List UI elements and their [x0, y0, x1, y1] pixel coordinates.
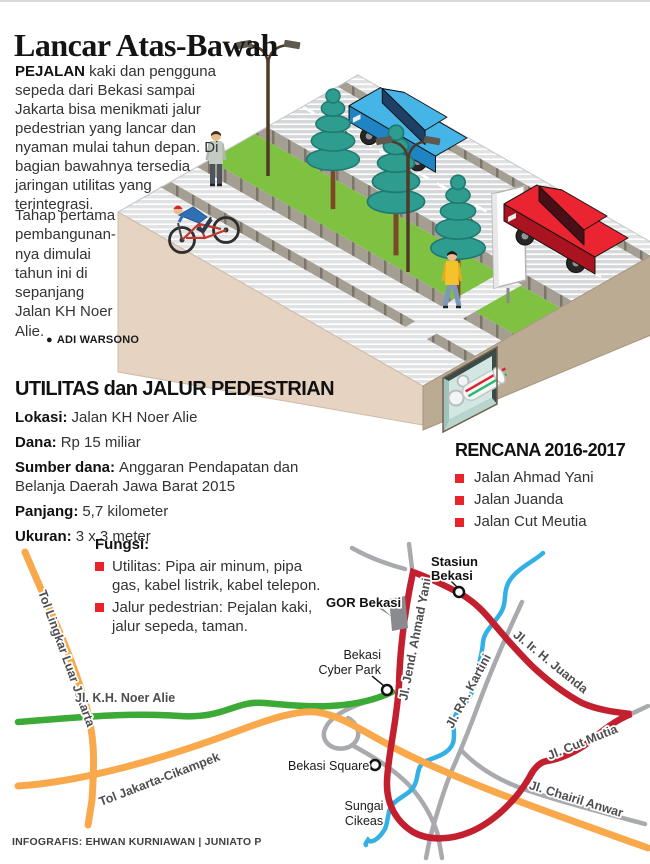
red-square-bullet-icon [95, 603, 104, 612]
spec-lokasi: Lokasi:Jalan KH Noer Alie [15, 408, 345, 427]
road-tol-cikampek [18, 712, 648, 848]
rencana-heading: RENCANA 2016-2017 [455, 440, 640, 461]
stasiun-marker-icon [454, 587, 464, 597]
fungsi-item: Utilitas: Pipa air minum, pipa gas, kabe… [95, 557, 327, 595]
intro-lead-word: PEJALAN [15, 63, 85, 80]
label-cut-mutia: Jl. Cut Mutia [545, 721, 620, 762]
spec-panjang: Panjang:5,7 kilometer [15, 502, 345, 521]
label-tol-lingkar: Tol Lingkar Luar Jakarta [35, 588, 98, 729]
byline-name: ADI WARSONO [57, 334, 139, 346]
label-cyber-line1: Bekasi [343, 648, 381, 662]
intro-paragraph-narrow: Tahap pertama pembangunan-nya dimulai ta… [15, 206, 123, 341]
rencana-item: Jalan Cut Meutia [455, 511, 640, 533]
rencana-item: Jalan Juanda [455, 489, 640, 511]
label-bekasi-square: Bekasi Square [288, 759, 369, 773]
intro-text: kaki dan pengguna sepeda dari Bekasi sam… [15, 63, 218, 213]
red-square-bullet-icon [95, 562, 104, 571]
label-stasiun-line1: Stasiun [431, 554, 478, 569]
cyber-pointer [372, 676, 384, 686]
fungsi-heading: Fungsi: [95, 536, 327, 553]
label-chairil-anwar: Jl. Chairil Anwar [528, 778, 625, 820]
label-sungai-line2: Cikeas [345, 814, 383, 828]
fungsi-item: Jalur pedestrian: Pejalan kaki, jalur se… [95, 598, 327, 636]
red-square-bullet-icon [455, 496, 464, 505]
red-square-bullet-icon [455, 474, 464, 483]
pipe-end-icon [449, 391, 464, 406]
intro-paragraph: PEJALAN kaki dan pengguna sepeda dari Be… [15, 62, 227, 214]
rencana-item: Jalan Ahmad Yani [455, 467, 640, 489]
byline-bullet-icon: ● [46, 334, 53, 346]
label-stasiun-line2: Bekasi [431, 568, 473, 583]
byline: ●ADI WARSONO [46, 334, 139, 346]
label-gor: GOR Bekasi [326, 595, 401, 610]
spec-dana: Dana:Rp 15 miliar [15, 433, 345, 452]
specs-heading: UTILITAS dan JALUR PEDESTRIAN [15, 378, 345, 401]
specs-section: UTILITAS dan JALUR PEDESTRIAN Lokasi:Jal… [15, 378, 345, 552]
label-noer-alie: Jl. K.H. Noer Alie [75, 691, 175, 705]
label-cyber-line2: Cyber Park [318, 663, 381, 677]
cyber-park-marker-icon [382, 685, 392, 695]
red-square-bullet-icon [455, 518, 464, 527]
fungsi-section: Fungsi: Utilitas: Pipa air minum, pipa g… [95, 536, 327, 639]
infographic-page: { "title": "Lancar Atas-Bawah", "intro":… [0, 0, 650, 864]
page-title: Lancar Atas-Bawah [14, 27, 414, 64]
credit-line: INFOGRAFIS: EHWAN KURNIAWAN | JUNIATO P [12, 836, 262, 848]
label-kartini: Jl. RA. Kartini [443, 652, 494, 731]
label-sungai-line1: Sungai [345, 799, 384, 813]
bekasi-square-marker-icon [370, 760, 380, 770]
rencana-section: RENCANA 2016-2017 Jalan Ahmad Yani Jalan… [455, 440, 640, 533]
spec-sumber-dana: Sumber dana:Anggaran Pendapatan dan Bela… [15, 458, 333, 496]
